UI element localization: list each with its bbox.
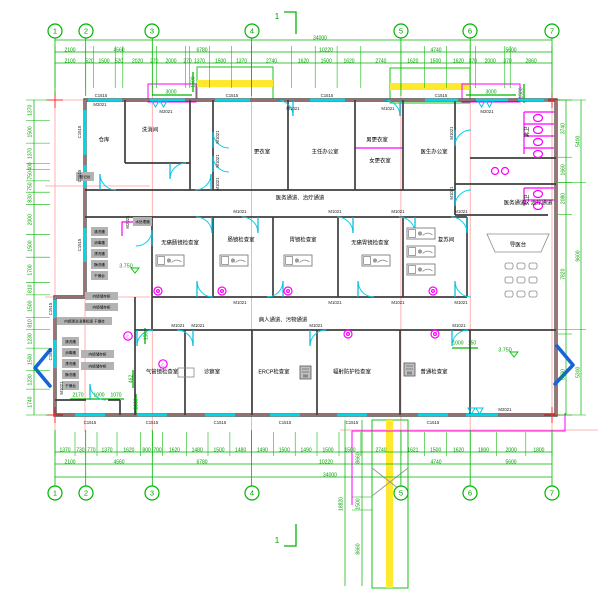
equipment-icon bbox=[300, 366, 311, 379]
dim-label: 1500 bbox=[430, 58, 441, 64]
dim-label: 1620 bbox=[343, 58, 354, 64]
dim-label: 810 bbox=[27, 319, 33, 328]
tag-label: M1021 bbox=[391, 300, 405, 305]
dim-label: 2100 bbox=[64, 459, 75, 465]
dim-label: 1500 bbox=[344, 447, 355, 453]
dim-label: 3000 bbox=[485, 89, 496, 95]
entrance-door-symbols bbox=[152, 101, 493, 414]
tag-label: M1021 bbox=[191, 323, 205, 328]
grid-bubble-label: 4 bbox=[250, 488, 254, 497]
section-markers bbox=[284, 12, 296, 546]
room-label: 主任办公室 bbox=[312, 147, 340, 155]
note-label: 内镜储存柜 bbox=[93, 293, 111, 298]
section-labels: 11 bbox=[275, 12, 280, 545]
dim-label: 1500 bbox=[213, 447, 224, 453]
dim-label: 750 bbox=[27, 182, 33, 191]
dim-label: 1740 bbox=[27, 396, 33, 407]
tag-label: C1515 bbox=[48, 302, 53, 315]
floor-plan-canvas: 12345671234567 清洗槽消毒槽漂洗槽酶洗槽干燥台内镜储存柜内镜储存柜… bbox=[0, 0, 600, 600]
dim-label: 2170 bbox=[72, 392, 83, 398]
dim-label: 2000 bbox=[506, 447, 517, 453]
tag-label: C1515 bbox=[48, 347, 53, 360]
magenta-symbol-label: C bbox=[161, 363, 165, 368]
dim-label: 3000 bbox=[165, 89, 176, 95]
dim-label: 5400 bbox=[575, 136, 581, 147]
floor-plan-drawing: 12345671234567 清洗槽消毒槽漂洗槽酶洗槽干燥台内镜储存柜内镜储存柜… bbox=[0, 0, 600, 600]
note-label: 消毒槽 bbox=[94, 240, 105, 245]
tag-label: M2021 bbox=[159, 109, 173, 114]
dim-label: 5300 bbox=[575, 367, 581, 378]
dim-label: 1370 bbox=[101, 447, 112, 453]
dim-label: 1500 bbox=[27, 240, 33, 251]
bed bbox=[220, 255, 248, 266]
bed bbox=[407, 246, 435, 257]
section-label: 1 bbox=[275, 12, 280, 21]
dim-label: 1800 bbox=[478, 447, 489, 453]
dim-label: 1500 bbox=[518, 87, 524, 98]
dim-label: 1370 bbox=[236, 58, 247, 64]
dim-label: 1500 bbox=[190, 76, 196, 87]
tag-label: C1515 bbox=[77, 238, 82, 251]
dim-label: 1620 bbox=[169, 447, 180, 453]
dim-label: 10220 bbox=[319, 459, 333, 465]
room-label: 女更衣室 bbox=[369, 156, 391, 164]
dim-label: 8660 bbox=[355, 452, 361, 463]
tag-label: M2021 bbox=[480, 109, 494, 114]
dim-label: 462 bbox=[128, 375, 134, 384]
magenta-symbol-label: C bbox=[126, 335, 130, 340]
dim-label: 1500 bbox=[98, 58, 109, 64]
dim-label: 770 bbox=[87, 447, 96, 453]
dim-label: 2100 bbox=[64, 47, 75, 53]
cabinet bbox=[178, 368, 194, 377]
tag-label: C1515 bbox=[214, 420, 227, 425]
dim-label: 1230 bbox=[27, 374, 33, 385]
room-label: 复苏间 bbox=[438, 235, 454, 243]
room-label: 无痛肠镜检查室 bbox=[161, 238, 199, 246]
dim-label: 1490 bbox=[257, 447, 268, 453]
tag-label: M1021 bbox=[233, 300, 247, 305]
dim-label: 1700 bbox=[27, 264, 33, 275]
note-label: 清洗槽 bbox=[65, 339, 76, 344]
dim-label: 5600 bbox=[505, 47, 516, 53]
tag-label: M1021 bbox=[381, 106, 395, 111]
note-label: 干燥台 bbox=[65, 383, 76, 388]
room-label: 诊察室 bbox=[204, 367, 221, 375]
room-label: 无痛胃镜检查室 bbox=[351, 238, 389, 246]
level-label: 3.750 bbox=[119, 263, 133, 269]
grid-bubble-label: 5 bbox=[399, 488, 403, 497]
tag-label: M1021 bbox=[233, 209, 247, 214]
dim-label: 1500 bbox=[27, 126, 33, 137]
dim-label: 520 bbox=[85, 58, 94, 64]
room-label: 导医台 bbox=[510, 240, 526, 248]
dim-label: 1620 bbox=[453, 447, 464, 453]
dim-label: 18820 bbox=[338, 497, 344, 511]
dim-label: 270 bbox=[183, 58, 192, 64]
note-label: 酶洗槽 bbox=[94, 262, 105, 267]
dim-label: 2000 bbox=[27, 214, 33, 225]
note-label: 酶洗槽 bbox=[65, 372, 76, 377]
dim-label: 1480 bbox=[235, 447, 246, 453]
room-label: 病人通道、污物通道 bbox=[259, 315, 308, 323]
dim-label: 2080 bbox=[560, 193, 566, 204]
dim-label: 4560 bbox=[113, 47, 124, 53]
dim-label: 1490 bbox=[301, 447, 312, 453]
room-label: 医务通道、治疗通道 bbox=[276, 193, 325, 201]
bed bbox=[407, 228, 435, 239]
dim-label: 2860 bbox=[526, 58, 537, 64]
grid-bubble-label: 6 bbox=[468, 26, 472, 35]
dim-label: 1500 bbox=[215, 58, 226, 64]
dim-label: 6780 bbox=[196, 459, 207, 465]
dim-label: 2740 bbox=[266, 58, 277, 64]
tag-label: C1515 bbox=[77, 125, 82, 138]
toilet-fixtures bbox=[492, 112, 555, 210]
tag-label: M2021 bbox=[125, 215, 130, 229]
dim-label: 1620 bbox=[453, 58, 464, 64]
tag-label: M1021 bbox=[171, 323, 185, 328]
dim-label: 34000 bbox=[313, 35, 327, 41]
grid-bubble-label: 7 bbox=[550, 488, 554, 497]
grid-bubble-label: 1 bbox=[53, 26, 57, 35]
dim-label: 1370 bbox=[194, 58, 205, 64]
tag-label: M1021 bbox=[215, 177, 220, 191]
note-label: 消毒槽 bbox=[65, 350, 76, 355]
tag-label: M1021 bbox=[449, 126, 454, 140]
bed bbox=[156, 255, 184, 266]
room-label: 肠镜检查室 bbox=[228, 235, 256, 243]
dim-label: 8660 bbox=[355, 543, 361, 554]
room-label: 普通检查室 bbox=[421, 367, 449, 375]
room-label: 气管镜检查室 bbox=[146, 367, 179, 375]
dim-label: 1000 bbox=[133, 398, 139, 409]
tag-label: M1021 bbox=[215, 154, 220, 168]
tag-label: C1515 bbox=[95, 93, 108, 98]
dim-label: 1000 bbox=[93, 392, 104, 398]
dim-label: 1621 bbox=[407, 447, 418, 453]
dim-label: 270 bbox=[150, 58, 159, 64]
tag-label: C1515 bbox=[427, 420, 440, 425]
dim-label: 4740 bbox=[430, 47, 441, 53]
dim-label: 34000 bbox=[323, 472, 337, 478]
note-label: 漂洗槽 bbox=[65, 361, 76, 366]
tag-label: M1021 bbox=[391, 209, 405, 214]
dim-label: 1500 bbox=[322, 447, 333, 453]
tag-label: M2021 bbox=[498, 407, 512, 412]
grid-bubble-label: 1 bbox=[53, 488, 57, 497]
tag-label: M1021 bbox=[328, 209, 342, 214]
level-label: 3.750 bbox=[498, 347, 512, 353]
note-label: 干燥台 bbox=[94, 273, 105, 278]
section-label: 1 bbox=[275, 536, 280, 545]
dim-label: 1370 bbox=[27, 148, 33, 159]
bed bbox=[284, 255, 312, 266]
room-label: 辐射防护检查室 bbox=[333, 367, 371, 375]
tag-label: C1515 bbox=[346, 420, 359, 425]
grid-bubble-label: 2 bbox=[84, 26, 88, 35]
dim-label: 10220 bbox=[319, 47, 333, 53]
dim-label: 1230 bbox=[27, 333, 33, 344]
tag-label: M1021 bbox=[309, 323, 323, 328]
dim-label: 2020 bbox=[132, 58, 143, 64]
dim-label: 6780 bbox=[196, 47, 207, 53]
dim-label: 9600 bbox=[575, 250, 581, 261]
room-label: ERCP检查室 bbox=[258, 367, 290, 375]
room-label: 洗消间 bbox=[142, 125, 158, 133]
dim-label: 1070 bbox=[110, 392, 121, 398]
bed bbox=[362, 255, 390, 266]
grid-bubble-label: 2 bbox=[84, 488, 88, 497]
dim-label: 5700 bbox=[560, 369, 566, 380]
dim-label: 370 bbox=[503, 58, 512, 64]
dim-label: 1500 bbox=[355, 498, 361, 509]
furniture bbox=[156, 228, 549, 379]
grid-bubble-label: 3 bbox=[150, 488, 154, 497]
dim-label: 520 bbox=[115, 58, 124, 64]
dim-label: 1620 bbox=[123, 447, 134, 453]
tag-label: M2021 bbox=[93, 102, 107, 107]
note-label: 水处理器 bbox=[135, 219, 150, 224]
dim-label: 1370 bbox=[27, 105, 33, 116]
dim-label: 830 bbox=[27, 194, 33, 203]
stair-top-right bbox=[390, 68, 470, 103]
note-label: 内镜储存柜 bbox=[93, 304, 111, 309]
grid-bubble-label: 6 bbox=[468, 488, 472, 497]
dim-label: 2000 bbox=[485, 58, 496, 64]
room-label: 医生办公室 bbox=[421, 147, 449, 155]
note-label: 清洗槽 bbox=[94, 229, 105, 234]
room-label: 更衣室 bbox=[254, 147, 271, 155]
dim-label: 730 bbox=[76, 447, 85, 453]
dim-label: 4560 bbox=[113, 459, 124, 465]
tag-label: C1515 bbox=[226, 93, 239, 98]
dim-label: 1500 bbox=[321, 58, 332, 64]
dim-label: 2100 bbox=[64, 58, 75, 64]
bed bbox=[407, 264, 435, 275]
tag-label: C1515 bbox=[84, 420, 97, 425]
highlight-boxes bbox=[122, 84, 565, 505]
dim-label: 150 bbox=[468, 340, 477, 346]
dim-label: 5600 bbox=[505, 459, 516, 465]
dim-label: 1000 bbox=[452, 340, 463, 346]
tag-label: M1021 bbox=[286, 106, 300, 111]
dimension-lines bbox=[34, 40, 581, 586]
dim-label: 1500 bbox=[430, 447, 441, 453]
note-label: 内镜储存柜 bbox=[89, 363, 107, 368]
grid-bubble-label: 3 bbox=[150, 26, 154, 35]
equipment-icon bbox=[404, 363, 415, 376]
tag-label: M1021 bbox=[59, 381, 64, 395]
dim-label: 1500 bbox=[279, 447, 290, 453]
dim-label: 1480 bbox=[192, 447, 203, 453]
grid-bubble-label: 7 bbox=[550, 26, 554, 35]
dim-label: 1660 bbox=[560, 164, 566, 175]
dim-label: 750 bbox=[27, 171, 33, 180]
dim-label: 2740 bbox=[375, 58, 386, 64]
tag-label: M1021 bbox=[452, 323, 466, 328]
dim-label: 700 bbox=[153, 447, 162, 453]
room-label: 医务通道、治疗通道 bbox=[504, 198, 553, 206]
stair-bottom-exterior bbox=[372, 420, 408, 588]
room-label: 男更衣室 bbox=[366, 135, 388, 143]
dim-label: 3740 bbox=[560, 123, 566, 134]
note-label: 内镜清洗消毒机组 干燥台 bbox=[64, 318, 105, 323]
equipment-notes: 清洗槽消毒槽漂洗槽酶洗槽干燥台内镜储存柜内镜储存柜内镜清洗消毒机组 干燥台清洗槽… bbox=[57, 172, 152, 390]
tag-label: M1021 bbox=[449, 186, 454, 200]
room-label: 仓库 bbox=[99, 135, 110, 143]
tag-label: C1515 bbox=[146, 420, 159, 425]
tag-label: C1515 bbox=[279, 420, 292, 425]
dim-label: 1500 bbox=[27, 300, 33, 311]
tag-label: M1021 bbox=[215, 130, 220, 144]
dim-label: 1500 bbox=[27, 354, 33, 365]
dim-label: 1370 bbox=[59, 447, 70, 453]
tag-label: M1021 bbox=[454, 300, 468, 305]
dim-label: 2000 bbox=[165, 58, 176, 64]
tag-label: C1515 bbox=[435, 93, 448, 98]
note-label: 漂洗槽 bbox=[94, 251, 105, 256]
note-label: 内镜储存柜 bbox=[89, 351, 107, 356]
dim-label: 1800 bbox=[533, 447, 544, 453]
dim-label: 150 bbox=[143, 332, 149, 341]
dim-label: 370 bbox=[469, 58, 478, 64]
tag-label: M1021 bbox=[328, 300, 342, 305]
tag-label: C1515 bbox=[77, 169, 82, 182]
dim-label: 800 bbox=[142, 447, 151, 453]
room-label: 男卫 bbox=[523, 126, 530, 137]
dim-label: 2740 bbox=[375, 447, 386, 453]
grid-bubble-label: 4 bbox=[250, 26, 254, 35]
tag-label: C1515 bbox=[321, 93, 334, 98]
dim-label: 7820 bbox=[560, 268, 566, 279]
tag-label: M1021 bbox=[454, 209, 468, 214]
dim-label: 4740 bbox=[430, 459, 441, 465]
dim-label: 1620 bbox=[407, 58, 418, 64]
room-label: 胃镜检查室 bbox=[290, 235, 318, 243]
dim-label: 1620 bbox=[298, 58, 309, 64]
dim-label: 400 bbox=[27, 162, 33, 171]
grid-bubble-label: 5 bbox=[399, 26, 403, 35]
dim-label: 810 bbox=[27, 284, 33, 293]
